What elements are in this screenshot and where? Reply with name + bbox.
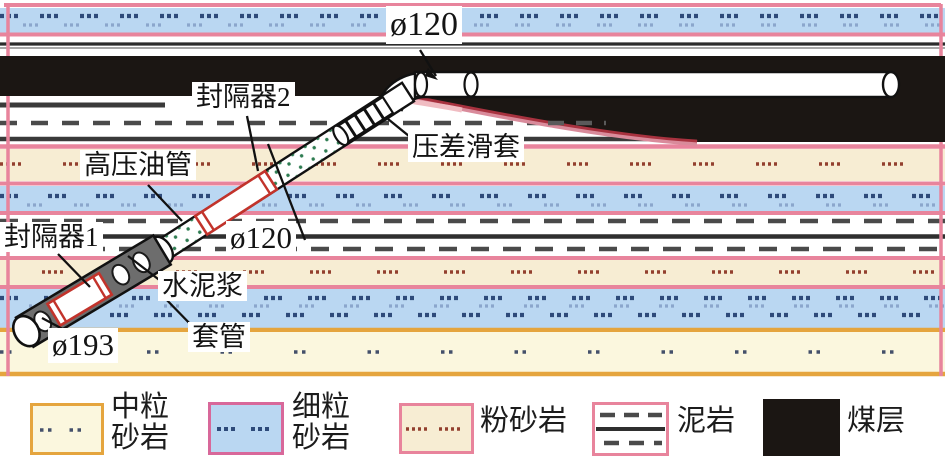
well-completion-diagram: ø120 封隔器2 压差滑套 高压油管 封隔器1 ø120 水泥浆 套管 ø19… [0,0,945,468]
band-fine-sandstone-3 [0,289,945,328]
legend-label-fine-sandstone: 细粒 砂岩 [292,392,350,455]
label-sliding-sleeve: 压差滑套 [408,132,524,162]
legend-label-coal: 煤层 [847,406,905,437]
legend-swatch-siltstone [399,403,474,459]
legend-label-siltstone: 粉砂岩 [480,406,567,437]
legend-swatch-mudstone [592,402,669,461]
legend-swatch-coal [763,399,840,461]
label-hp-tubing: 高压油管 [80,150,196,180]
label-dia-casing: ø193 [48,328,118,363]
band-fine-sandstone-1 [0,8,945,33]
legend-label-medium-sandstone: 中粒 砂岩 [111,392,169,455]
wellbore-end-opening [883,72,899,97]
label-dia-mid: ø120 [226,221,296,256]
label-casing: 套管 [188,322,250,352]
wellbore-horizontal [415,72,899,97]
label-dia-top: ø120 [386,6,462,44]
label-packer1: 封隔器1 [0,222,103,252]
tube-ring [415,73,427,97]
legend-swatch-medium-sandstone [30,403,104,460]
legend-swatch-fine-sandstone [208,402,284,460]
band-fine-sandstone-2 [0,186,945,211]
legend-label-mudstone: 泥岩 [677,406,735,437]
strata-cross-section [0,0,945,390]
label-cement: 水泥浆 [158,271,247,301]
label-packer2: 封隔器2 [192,82,295,112]
tube-ring [465,73,478,97]
band-medium-sandstone [0,332,945,372]
